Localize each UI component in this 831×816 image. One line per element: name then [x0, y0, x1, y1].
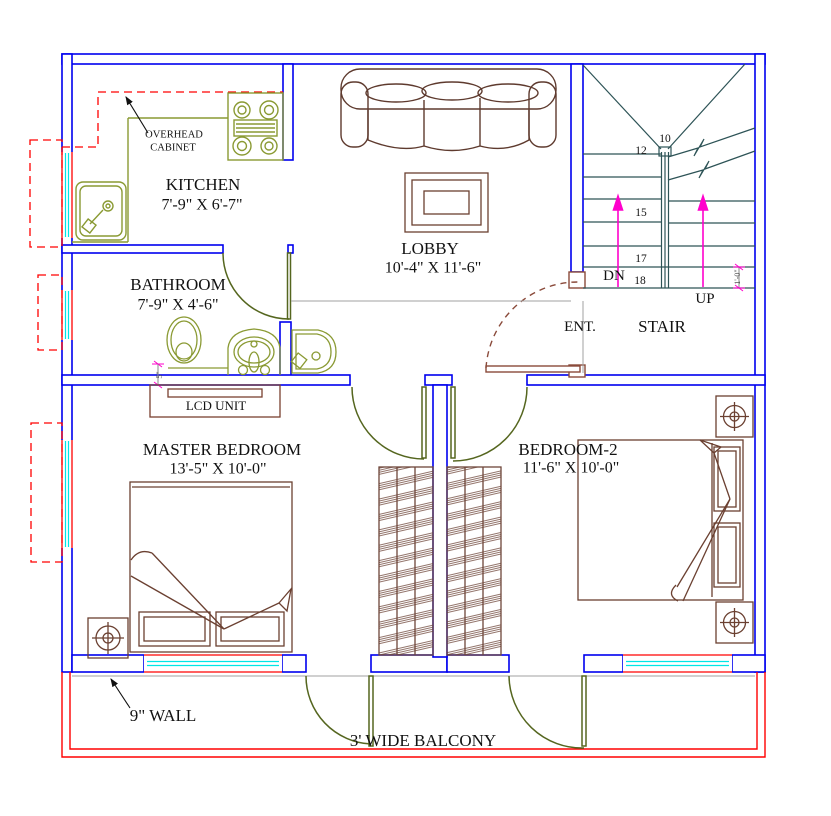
stair-dim-label: 1'-0"	[734, 269, 742, 284]
bathroom-dim-label: 5"	[156, 371, 164, 378]
stair-step-15: 15	[635, 207, 647, 219]
wall-note-label: 9" WALL	[130, 707, 197, 725]
overhead-cabinet-label-line2: CABINET	[150, 142, 196, 153]
master-bedside-table	[88, 618, 128, 658]
entrance-label: ENT.	[564, 320, 596, 336]
staircase	[583, 64, 755, 288]
balcony-door-bedroom2	[509, 676, 586, 748]
corner-basin	[291, 330, 336, 373]
master-bedroom-door	[352, 387, 426, 459]
bedroom2-door	[451, 387, 527, 461]
stair-up-label: UP	[695, 292, 714, 308]
wash-basin	[228, 329, 280, 375]
kitchen-sink	[76, 182, 126, 240]
lcd-unit-label: LCD UNIT	[186, 399, 246, 413]
stair-step-10: 10	[659, 133, 671, 145]
overhead-cabinet-label-line1: OVERHEAD	[145, 129, 203, 140]
floor-plan: OVERHEAD CABINET KITCHEN 7'-9" X 6'-7" B…	[0, 0, 831, 816]
lobby-dims: 10'-4" X 11'-6"	[385, 261, 481, 278]
bathroom-dims: 7'-9" X 4'-6"	[137, 298, 218, 315]
stair-step-12: 12	[635, 145, 647, 157]
lobby-label: LOBBY	[401, 240, 459, 258]
kitchen-dims: 7'-9" X 6'-7"	[161, 198, 242, 215]
bathroom-door	[223, 253, 291, 319]
bedroom2-label: BEDROOM-2	[518, 441, 617, 459]
master-bed	[130, 482, 292, 652]
balcony-note-label: 3' WIDE BALCONY	[350, 732, 496, 750]
stove	[228, 93, 283, 160]
toilet	[167, 317, 228, 368]
stair-down-label: DN	[603, 269, 625, 285]
bathroom-label: BATHROOM	[130, 276, 225, 294]
kitchen-label: KITCHEN	[166, 176, 241, 194]
sofa	[341, 69, 556, 151]
master-bedroom-dims: 13'-5" X 10'-0"	[169, 462, 266, 479]
floor-plan-drawing	[0, 0, 831, 816]
master-bedroom-label: MASTER BEDROOM	[143, 441, 301, 459]
bedroom2-bedside-tables	[716, 396, 753, 643]
stair-arrows	[614, 196, 708, 287]
bedroom2-dims: 11'-6" X 10'-0"	[523, 461, 619, 478]
stair-step-17: 17	[635, 253, 647, 265]
floor-lines	[291, 301, 583, 373]
stair-label: STAIR	[638, 318, 686, 336]
center-table	[405, 173, 488, 232]
stair-step-18: 18	[634, 275, 646, 287]
